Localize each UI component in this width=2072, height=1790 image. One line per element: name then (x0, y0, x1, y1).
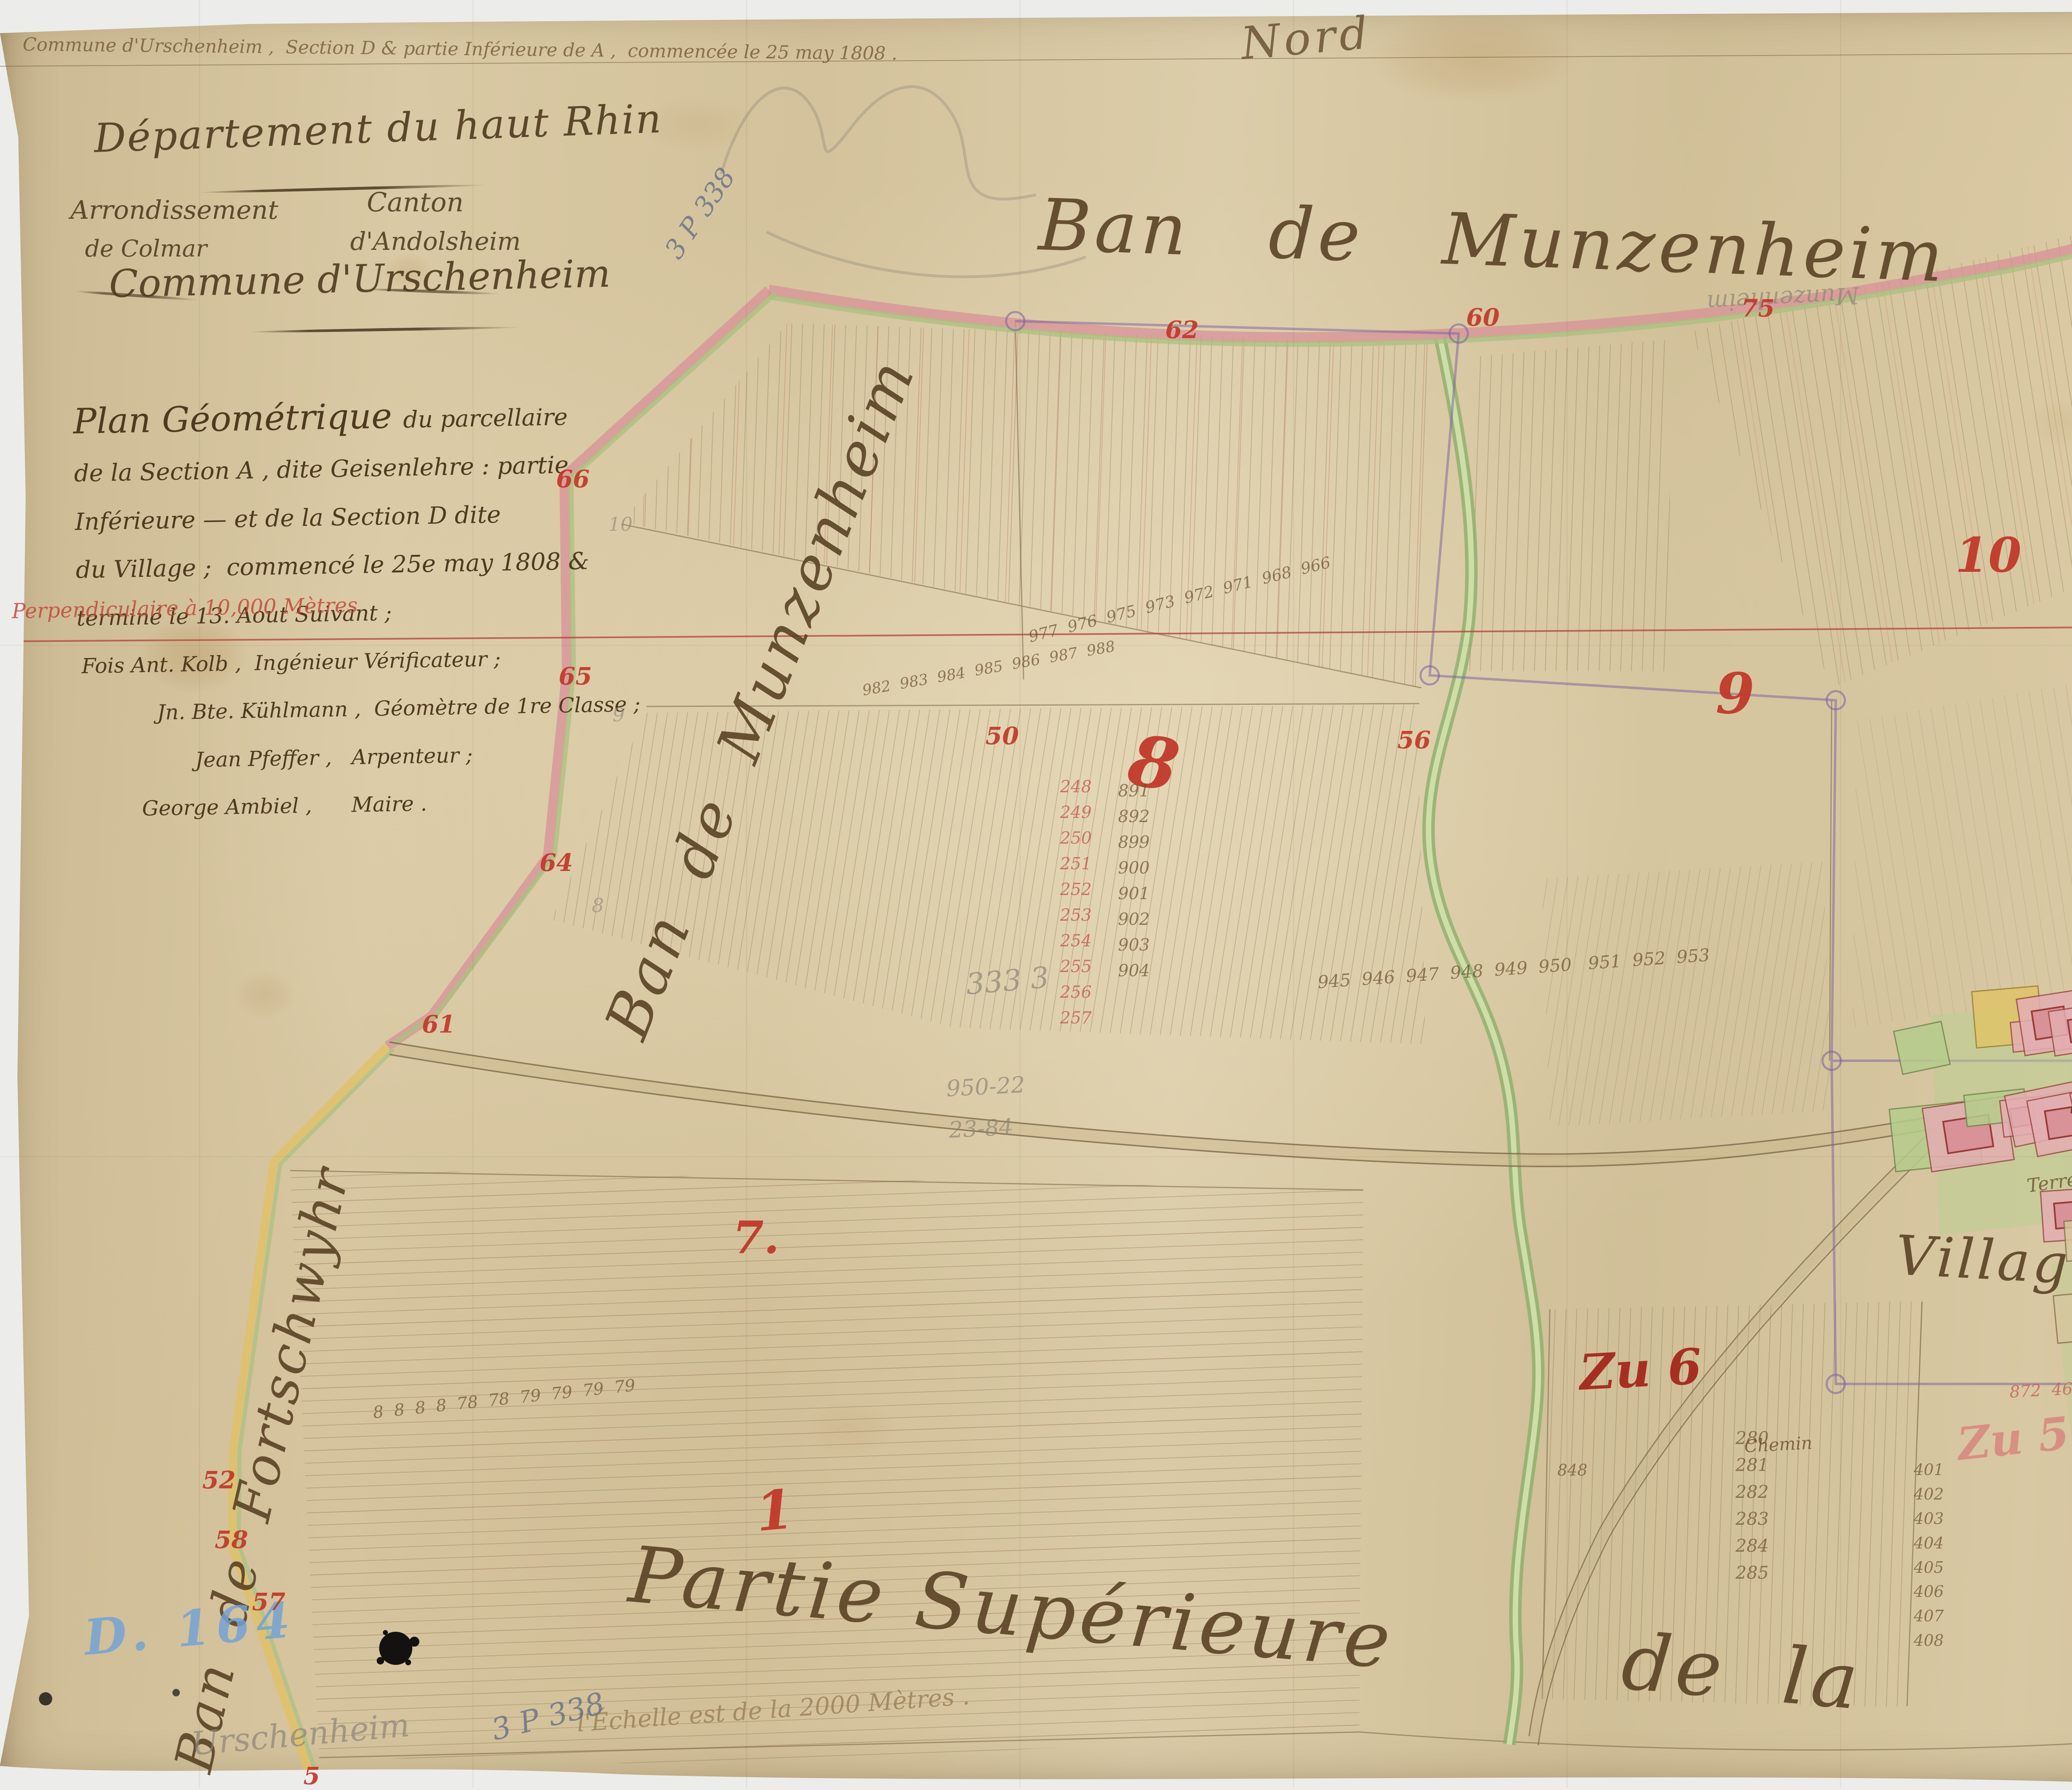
boundary-marker: 57 (252, 1588, 286, 1616)
title-main: Plan Géométrique (73, 395, 404, 442)
pencil-mark: 8 (592, 894, 604, 917)
boundary-marker: 58 (215, 1526, 248, 1554)
label-zu-6: Zu 6 (1578, 1340, 1703, 1400)
parcel-number-run: 248 249 250 251 252 253 254 255 256 257 (1060, 774, 1092, 1031)
label-nord: Nord (1239, 9, 1373, 69)
pencil-mark: 9 (612, 704, 625, 726)
boundary-marker: 50 (985, 722, 1019, 750)
boundary-marker: 5 (303, 1762, 320, 1790)
arrondissement-label: Arrondissement (70, 195, 278, 225)
title-line-2: de la Section A , dite Geisenlehre : par… (74, 446, 721, 490)
pencil-2384: 23-84 (948, 1115, 1014, 1142)
field-hatching (290, 99, 2072, 1765)
boundary-marker: 64 (540, 849, 573, 877)
parcel-number-run: 891 892 899 900 901 902 903 904 (1118, 778, 1150, 984)
parcel-number-run: 872 463 (2009, 1379, 2072, 1401)
signatory-kuhlmann: Jn. Bte. Kühlmann , Géomètre de 1re Clas… (78, 687, 725, 731)
title-line-4: du Village ; commencé le 25e may 1808 & (75, 543, 722, 587)
sheet-number-1-left: 1 (753, 1479, 796, 1541)
parcel-number-run: 848 (1557, 1462, 1588, 1479)
pencil-950: 950-22 (946, 1072, 1026, 1101)
fold-crease (746, 0, 747, 1788)
canton-label: Canton (367, 187, 464, 218)
sheet-number-7: 7. (733, 1213, 779, 1263)
label-zu-5: Zu 5 (1955, 1409, 2072, 1469)
canton-value: d'Andolsheim (350, 227, 521, 256)
sheet-number-9: 9 (1716, 663, 1755, 725)
boundary-marker: 66 (556, 465, 590, 493)
boundary-marker: 65 (559, 662, 592, 690)
pencil-mark: 10 (608, 513, 633, 535)
parcel-number-run: 401 402 403 404 405 406 407 408 (1914, 1458, 1944, 1653)
sheet-number-10: 10 (1955, 530, 2021, 582)
pencil-333: 333 3 (965, 962, 1050, 1001)
fold-crease (0, 1156, 2072, 1157)
boundary-marker: 60 (1466, 303, 1500, 331)
boundary-marker: 75 (1741, 294, 1775, 322)
fold-crease (1019, 0, 1021, 1788)
boundary-marker: 61 (422, 1010, 455, 1038)
signatory-ambiel: George Ambiel , Maire . (80, 783, 726, 826)
fold-crease (199, 0, 200, 1788)
signatory-pfeffer: Jean Pfeffer , Arpenteur ; (79, 735, 726, 779)
arrondissement-value: de Colmar (85, 235, 207, 262)
pencil-scribble (721, 87, 1086, 277)
fold-crease (0, 645, 2072, 646)
title-line-1: Plan Géométrique du parcellaire (73, 390, 720, 442)
boundary-marker: 56 (1397, 726, 1431, 754)
cadastral-map-sheet: Commune d'Urschenheim , Section D & part… (0, 0, 2072, 1788)
fold-crease (472, 0, 474, 1788)
boundary-marker: 52 (202, 1466, 236, 1494)
title-sub: du parcellaire (403, 404, 568, 433)
boundary-marker: 62 (1165, 316, 1199, 344)
parcel-number-run: 280 281 282 283 284 285 (1736, 1425, 1769, 1587)
